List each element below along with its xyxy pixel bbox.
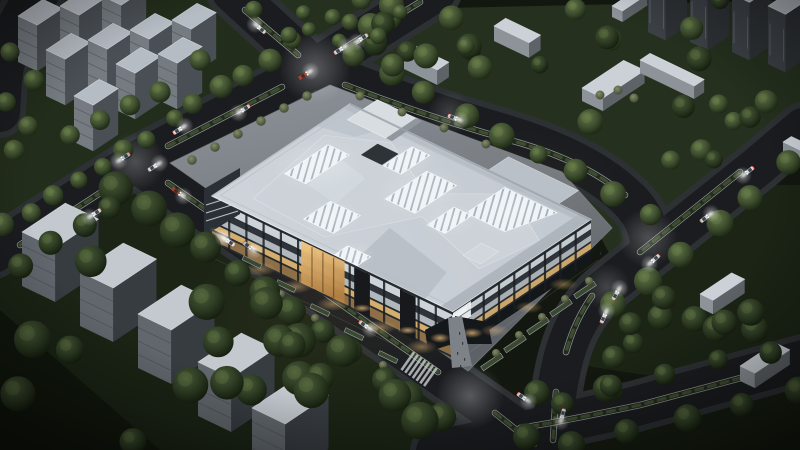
rendering-canvas (0, 0, 800, 450)
vignette-overlay (0, 0, 800, 450)
scene-svg (0, 0, 800, 450)
